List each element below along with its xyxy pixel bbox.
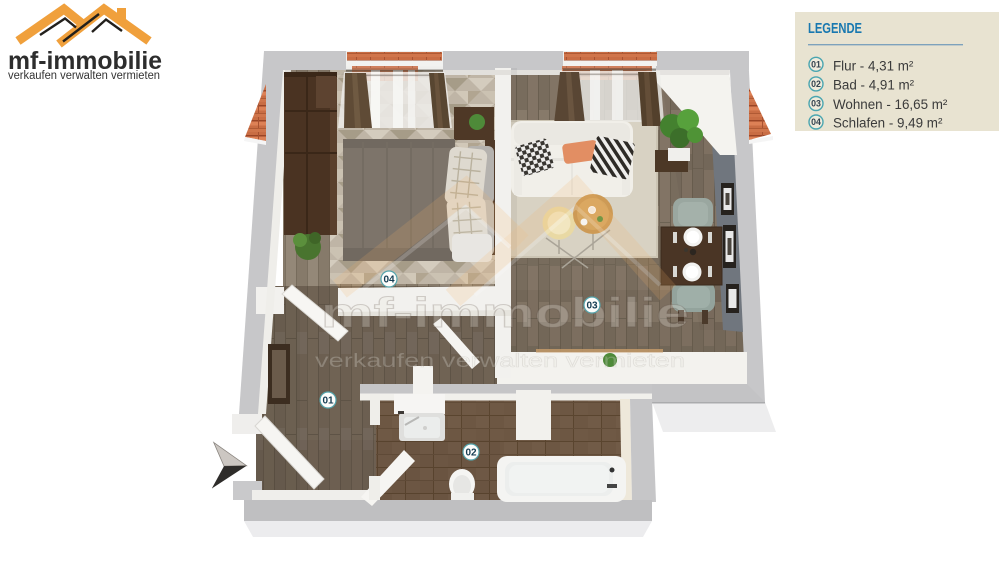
svg-text:mf-immobilie: mf-immobilie [321,289,689,336]
svg-text:01: 01 [811,59,821,69]
svg-text:03: 03 [811,99,821,109]
svg-text:02: 02 [811,79,821,89]
svg-text:Schlafen - 9,49 m²: Schlafen - 9,49 m² [833,115,943,130]
svg-text:03: 03 [586,301,598,312]
svg-text:04: 04 [383,275,395,286]
svg-text:Bad - 4,91 m²: Bad - 4,91 m² [833,78,915,93]
svg-text:verkaufen verwalten vermieten: verkaufen verwalten vermieten [315,351,685,372]
svg-text:Wohnen - 16,65 m²: Wohnen - 16,65 m² [833,97,948,112]
svg-text:verkaufen verwalten vermieten: verkaufen verwalten vermieten [8,70,160,82]
svg-text:Flur - 4,31 m²: Flur - 4,31 m² [833,59,914,74]
svg-text:04: 04 [811,117,821,127]
svg-text:02: 02 [465,448,477,459]
svg-text:01: 01 [322,396,334,407]
svg-text:LEGENDE: LEGENDE [808,21,862,37]
